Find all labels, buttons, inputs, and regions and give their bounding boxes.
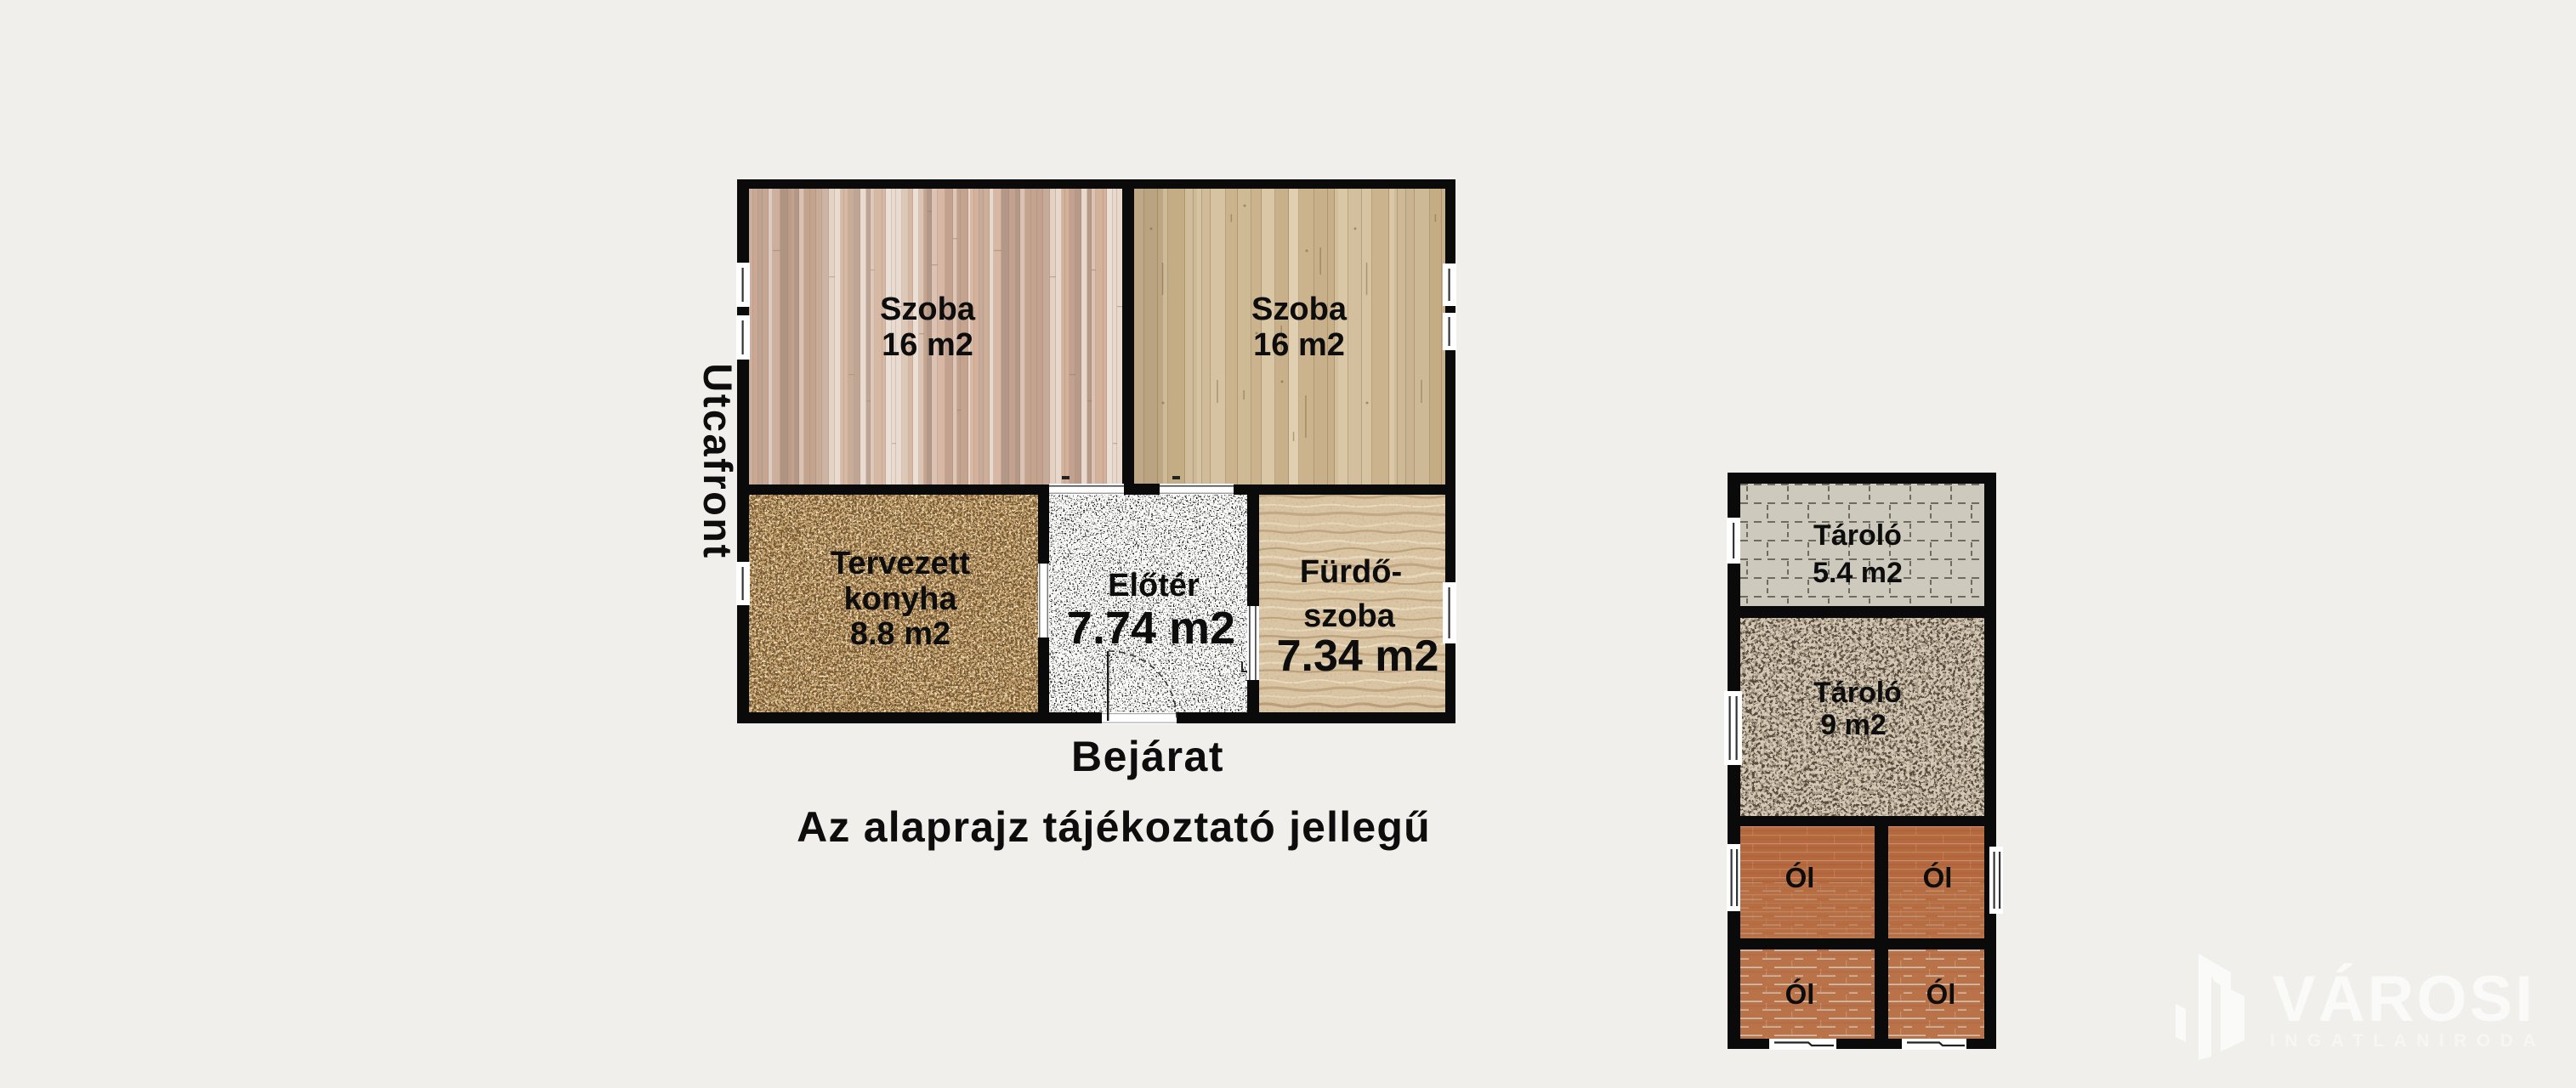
svg-text:Az alaprajz tájékoztató jelleg: Az alaprajz tájékoztató jellegű <box>797 803 1431 851</box>
svg-text:16 m2: 16 m2 <box>882 327 973 363</box>
svg-text:Fürdő-: Fürdő- <box>1300 554 1402 590</box>
svg-text:Előtér: Előtér <box>1108 568 1200 603</box>
svg-text:Bejárat: Bejárat <box>1071 733 1224 780</box>
svg-text:7.34 m2: 7.34 m2 <box>1277 632 1439 681</box>
svg-text:Szoba: Szoba <box>880 292 976 327</box>
svg-text:Tároló: Tároló <box>1813 519 1902 552</box>
svg-text:5.4 m2: 5.4 m2 <box>1813 557 1903 589</box>
svg-text:Tároló: Tároló <box>1813 677 1902 709</box>
svg-text:konyha: konyha <box>843 581 957 617</box>
svg-text:Ól: Ól <box>1785 862 1815 893</box>
svg-text:16 m2: 16 m2 <box>1253 327 1345 363</box>
svg-text:Szoba: Szoba <box>1251 292 1348 327</box>
svg-text:szoba: szoba <box>1303 598 1396 634</box>
svg-text:7.74 m2: 7.74 m2 <box>1067 603 1235 654</box>
svg-text:8.8 m2: 8.8 m2 <box>850 616 950 652</box>
svg-text:Ól: Ól <box>1926 978 1956 1010</box>
svg-text:Tervezett: Tervezett <box>831 546 970 581</box>
svg-text:9 m2: 9 m2 <box>1820 709 1887 741</box>
svg-text:VÁROSI: VÁROSI <box>2272 963 2535 1035</box>
svg-text:INGATLANIRODA: INGATLANIRODA <box>2270 1031 2545 1051</box>
svg-text:Ól: Ól <box>1785 978 1815 1010</box>
svg-text:Utcafront: Utcafront <box>695 363 740 559</box>
svg-text:Ól: Ól <box>1923 862 1953 893</box>
